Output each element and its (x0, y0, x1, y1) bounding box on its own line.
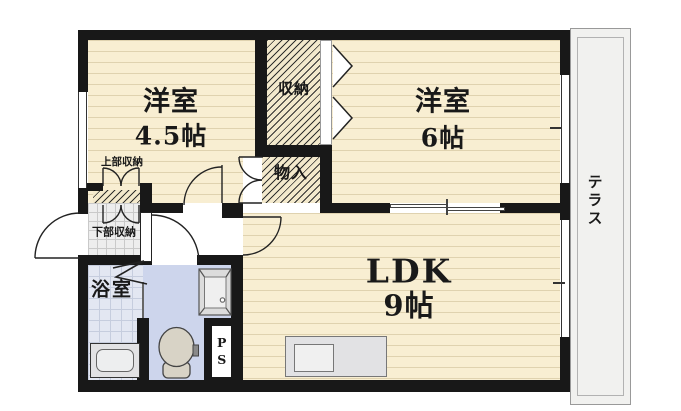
bathroom-label: 浴室 (91, 281, 133, 300)
room-western-6-size: 6帖 (421, 126, 465, 151)
lower-closet-door-left (103, 205, 121, 223)
mono-ire-door-bottom (239, 180, 262, 203)
lower-closet-label: 下部収納 (92, 227, 136, 238)
terrace-label: テラス (587, 174, 602, 228)
ldk-door-arc (243, 217, 281, 255)
room-ldk-size: 9帖 (383, 292, 434, 321)
upper-closet-door-right (121, 168, 139, 186)
closet-bifold-chevron-2 (333, 97, 352, 139)
toilet-flush-handle (193, 345, 199, 356)
washroom-door-arc (152, 215, 199, 262)
room-western-4-5-name: 洋室 (143, 89, 199, 116)
bedroom1-door-arc (184, 167, 222, 205)
mono-ire-door-top (239, 157, 262, 180)
room-western-4-5-size: 4.5帖 (135, 124, 208, 149)
entrance-door-arc (35, 213, 80, 258)
vanity-sink (199, 269, 231, 315)
door-symbols-layer (0, 0, 681, 411)
mono-ire-label: 物入 (274, 165, 308, 181)
room-ldk-name: LDK (366, 255, 453, 288)
upper-closet-door-left (103, 168, 121, 186)
closet-label: 収納 (278, 82, 310, 97)
toilet (159, 328, 199, 379)
room-western-6-name: 洋室 (415, 89, 471, 116)
lower-closet-door-right (121, 205, 139, 223)
pipe-space-label: PS (215, 335, 228, 369)
sink-drain (220, 298, 224, 302)
floor-plan-canvas: 洋室 4.5帖 洋室 6帖 LDK 9帖 収納 物入 上部収納 下部収納 浴室 … (0, 0, 681, 411)
upper-closet-label: 上部収納 (101, 157, 143, 168)
closet-bifold-chevron-1 (333, 45, 352, 87)
